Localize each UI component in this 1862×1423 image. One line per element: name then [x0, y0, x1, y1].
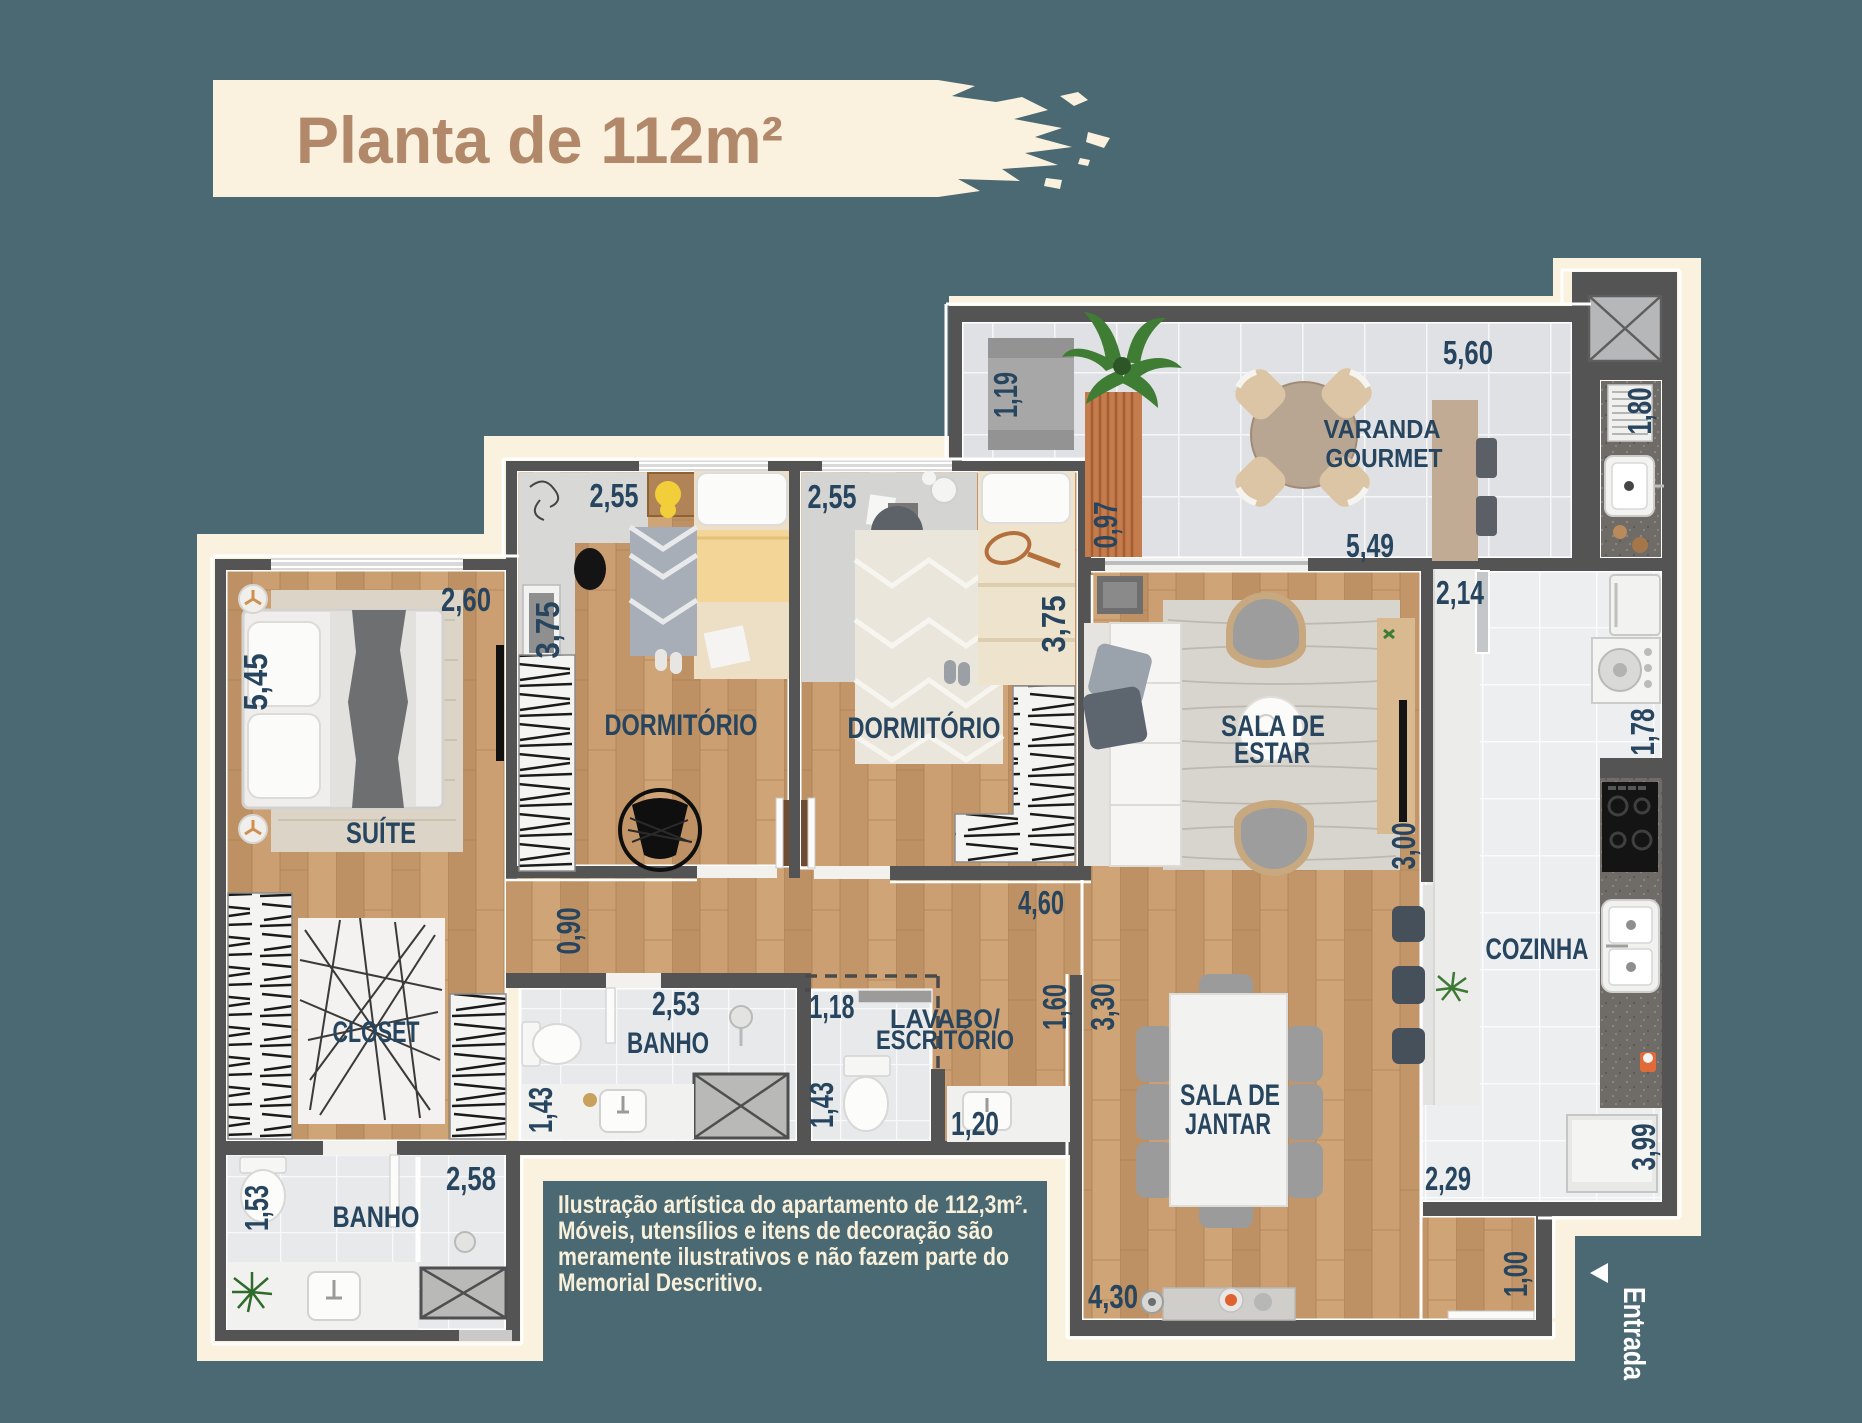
- svg-text:2,55: 2,55: [808, 478, 857, 515]
- svg-text:2,60: 2,60: [441, 581, 491, 618]
- svg-text:DORMITÓRIO: DORMITÓRIO: [848, 711, 1001, 745]
- svg-text:3,99: 3,99: [1625, 1124, 1662, 1171]
- svg-text:DORMITÓRIO: DORMITÓRIO: [605, 708, 758, 742]
- svg-text:3,75: 3,75: [529, 602, 566, 659]
- svg-text:Entrada: Entrada: [1617, 1287, 1652, 1381]
- svg-text:1,19: 1,19: [987, 372, 1024, 418]
- svg-text:0,90: 0,90: [550, 908, 587, 955]
- svg-text:1,60: 1,60: [1036, 984, 1073, 1030]
- svg-text:Ilustração artística do aparta: Ilustração artística do apartamento de 1…: [558, 1191, 1028, 1219]
- svg-text:Memorial Descritivo.: Memorial Descritivo.: [558, 1269, 763, 1297]
- svg-text:BANHO: BANHO: [627, 1027, 709, 1060]
- svg-text:1,80: 1,80: [1621, 388, 1658, 435]
- svg-text:1,43: 1,43: [803, 1082, 840, 1128]
- svg-text:5,60: 5,60: [1443, 334, 1493, 371]
- svg-text:1,18: 1,18: [810, 988, 855, 1025]
- svg-text:3,30: 3,30: [1084, 984, 1121, 1031]
- svg-text:SUÍTE: SUÍTE: [346, 816, 416, 850]
- svg-text:GOURMET: GOURMET: [1326, 443, 1443, 473]
- svg-text:CLOSET: CLOSET: [333, 1016, 420, 1049]
- svg-text:1,78: 1,78: [1624, 709, 1661, 756]
- svg-text:JANTAR: JANTAR: [1185, 1108, 1271, 1141]
- svg-text:4,60: 4,60: [1018, 884, 1064, 921]
- svg-text:4,30: 4,30: [1088, 1278, 1138, 1315]
- svg-text:2,55: 2,55: [590, 477, 639, 514]
- svg-text:ESTAR: ESTAR: [1234, 737, 1310, 770]
- svg-text:5,45: 5,45: [237, 654, 274, 711]
- svg-text:1,53: 1,53: [238, 1185, 275, 1231]
- svg-text:VARANDA: VARANDA: [1324, 414, 1441, 444]
- svg-text:2,58: 2,58: [446, 1160, 496, 1197]
- svg-text:0,97: 0,97: [1087, 502, 1124, 549]
- svg-text:1,43: 1,43: [522, 1087, 559, 1133]
- svg-text:1,20: 1,20: [951, 1105, 999, 1142]
- svg-text:3,75: 3,75: [1035, 596, 1072, 653]
- svg-text:meramente ilustrativos e não f: meramente ilustrativos e não fazem parte…: [558, 1243, 1009, 1271]
- svg-text:COZINHA: COZINHA: [1486, 933, 1589, 966]
- svg-text:3,00: 3,00: [1385, 823, 1422, 870]
- svg-text:ESCRITÓRIO: ESCRITÓRIO: [876, 1024, 1014, 1055]
- svg-text:Planta de 112m²: Planta de 112m²: [296, 103, 783, 177]
- svg-text:2,14: 2,14: [1436, 574, 1484, 611]
- svg-text:Móveis, utensílios e itens de: Móveis, utensílios e itens de decoração …: [558, 1217, 993, 1245]
- svg-text:2,29: 2,29: [1425, 1160, 1471, 1197]
- svg-text:2,53: 2,53: [652, 985, 700, 1022]
- svg-text:BANHO: BANHO: [333, 1201, 420, 1234]
- svg-text:5,49: 5,49: [1346, 527, 1394, 564]
- svg-text:1,00: 1,00: [1497, 1251, 1534, 1297]
